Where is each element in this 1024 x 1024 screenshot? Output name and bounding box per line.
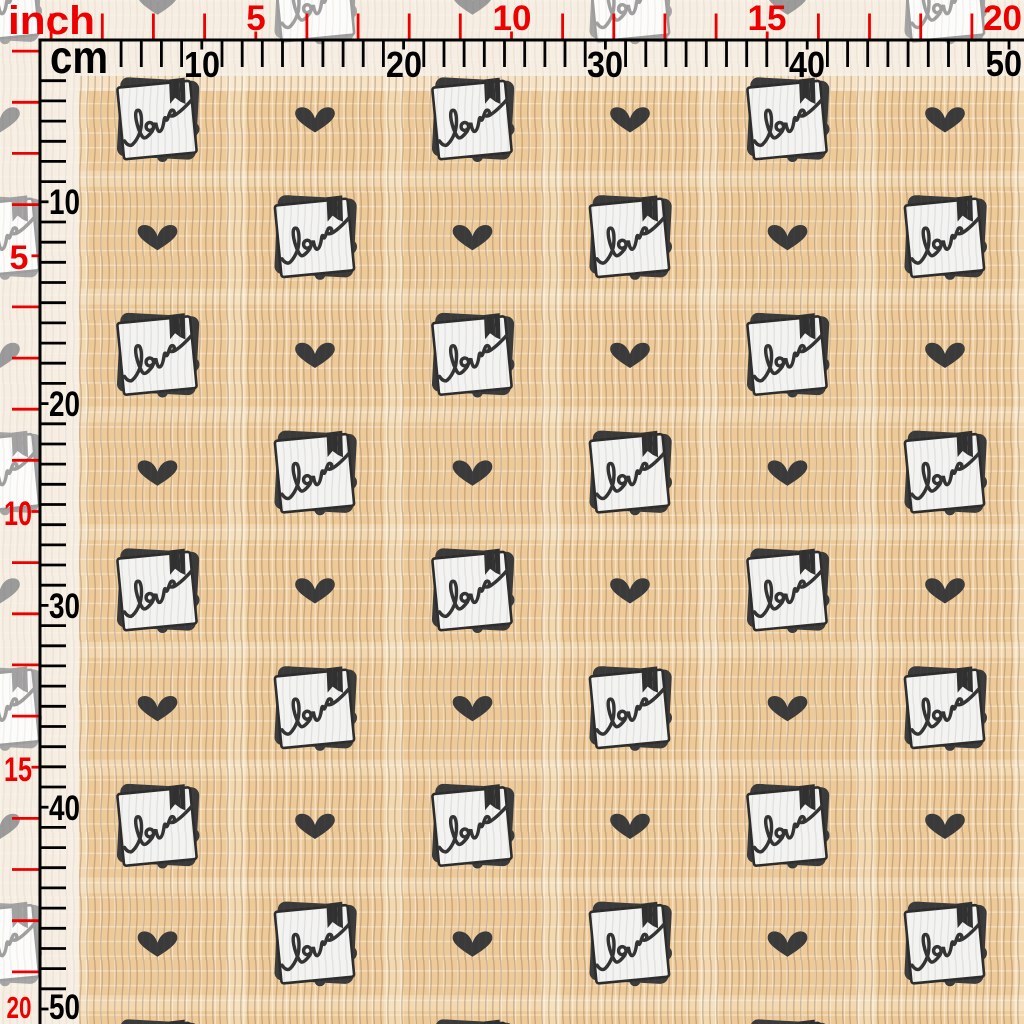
svg-text:10: 10 xyxy=(184,44,220,85)
svg-text:5: 5 xyxy=(246,0,265,38)
svg-text:30: 30 xyxy=(49,587,80,626)
svg-text:10: 10 xyxy=(49,183,80,222)
svg-text:5: 5 xyxy=(10,239,29,277)
svg-text:20: 20 xyxy=(49,385,80,424)
svg-text:cm: cm xyxy=(50,31,108,83)
svg-text:20: 20 xyxy=(7,990,32,1024)
svg-text:15: 15 xyxy=(748,0,787,38)
svg-text:15: 15 xyxy=(4,751,32,789)
svg-text:40: 40 xyxy=(789,44,825,85)
svg-text:10: 10 xyxy=(4,495,32,533)
svg-text:20: 20 xyxy=(386,44,422,85)
svg-text:40: 40 xyxy=(49,789,80,828)
svg-text:50: 50 xyxy=(986,43,1022,84)
svg-text:30: 30 xyxy=(587,44,623,85)
svg-text:50: 50 xyxy=(49,988,80,1024)
svg-text:10: 10 xyxy=(493,0,532,38)
svg-text:20: 20 xyxy=(983,0,1022,38)
